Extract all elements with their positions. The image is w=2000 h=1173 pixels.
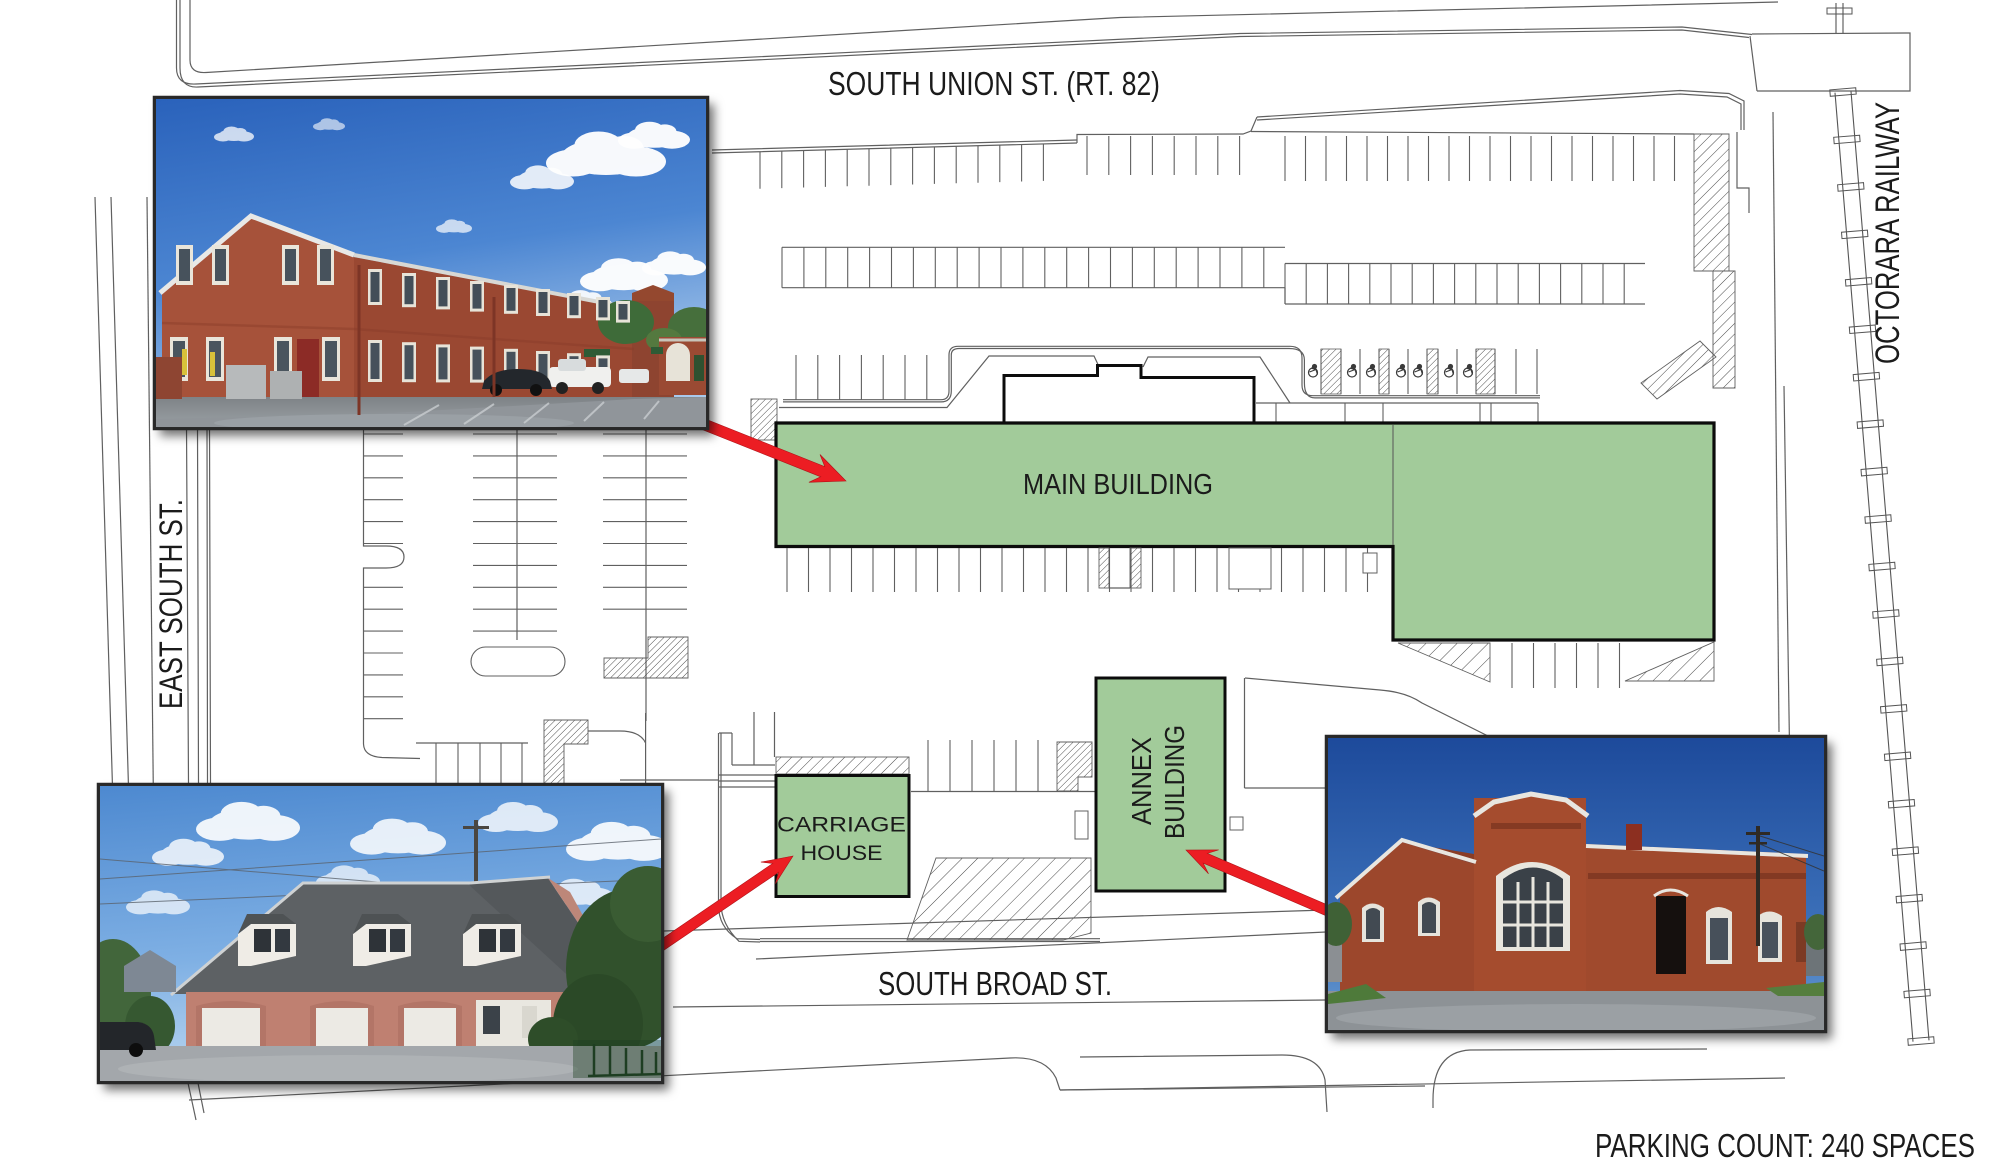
svg-text:HOUSE: HOUSE [801,841,883,865]
svg-text:SOUTH BROAD ST.: SOUTH BROAD ST. [878,965,1112,1002]
svg-text:PARKING COUNT: 240 SPACES: PARKING COUNT: 240 SPACES [1595,1127,1975,1164]
svg-text:SOUTH UNION ST. (RT. 82): SOUTH UNION ST. (RT. 82) [828,65,1160,102]
svg-text:BUILDING: BUILDING [1159,725,1190,839]
svg-text:OCTORARA RAILWAY: OCTORARA RAILWAY [1869,102,1907,364]
svg-text:EAST SOUTH ST.: EAST SOUTH ST. [153,499,189,709]
svg-text:CARRIAGE: CARRIAGE [777,813,906,837]
svg-text:MAIN BUILDING: MAIN BUILDING [1023,469,1213,501]
svg-text:ANNEX: ANNEX [1126,737,1157,825]
